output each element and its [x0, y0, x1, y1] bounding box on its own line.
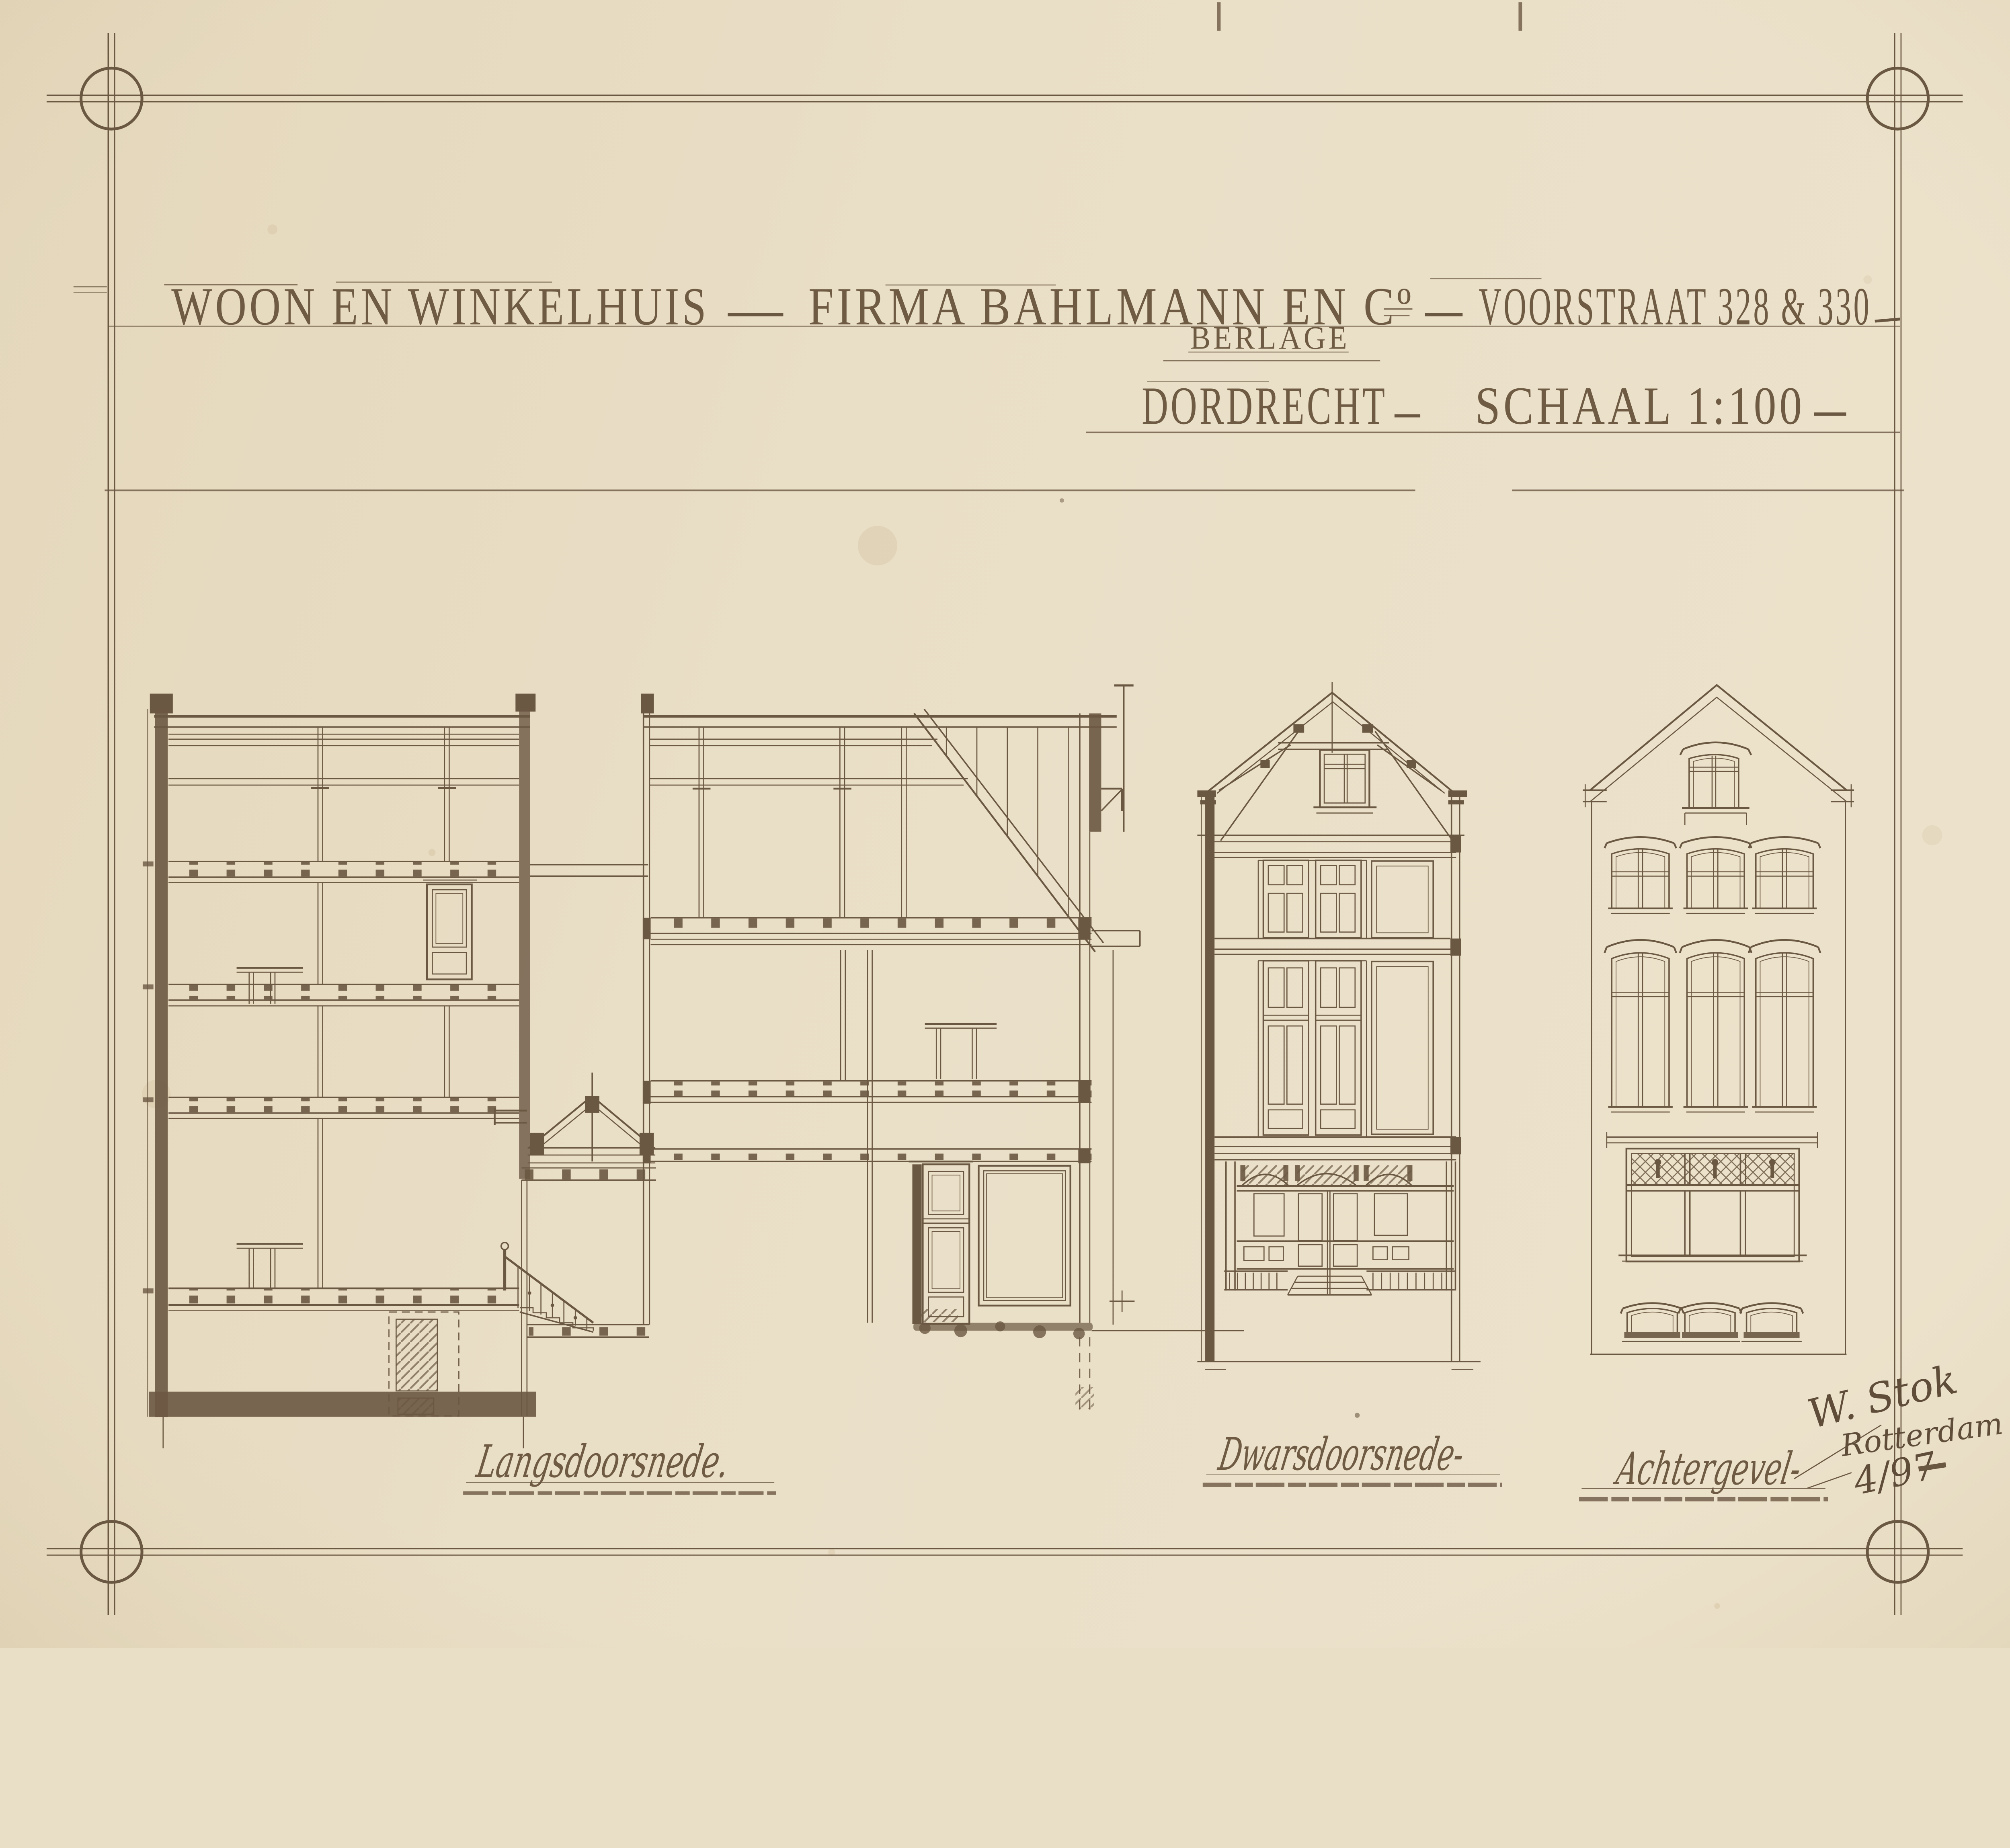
title-address: VOORSTRAAT 328 & 330: [1479, 277, 1871, 336]
drawing-sheet: WOON EN WINKELHUIS FIRMA BAHLMANN EN Cº …: [0, 0, 2010, 1648]
title-scale: SCHAAL 1:100: [1475, 376, 1805, 435]
figure-label-langsdoorsnede: Langsdoorsnede.: [473, 1436, 733, 1488]
title-annotation: BERLAGE: [1190, 320, 1350, 356]
title-city: DORDRECHT: [1142, 376, 1387, 435]
figure-label-dwarsdoorsnede: Dwarsdoorsnede-: [1215, 1429, 1468, 1481]
figure-label-achtergevel: Achtergevel-: [1611, 1443, 1805, 1495]
title-project: WOON EN WINKELHUIS: [171, 277, 709, 336]
